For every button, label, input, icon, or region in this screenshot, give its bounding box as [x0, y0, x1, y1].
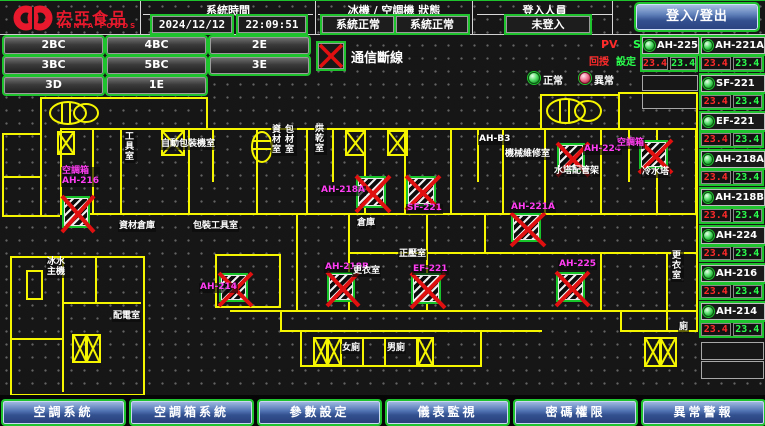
chiller-status-value: 系統正常 [322, 16, 394, 33]
wall [95, 256, 97, 302]
spiral-stair-icon [46, 99, 104, 131]
wall [120, 128, 122, 215]
stairs-icon [326, 337, 342, 366]
spiral-stair-icon [542, 96, 608, 130]
unit-values-ef-221: 23.4 23.4 [701, 133, 762, 146]
unit-name: AH-224 [716, 230, 757, 241]
unit-name: AH-218A [715, 154, 764, 165]
unit-row-ah-224[interactable]: AH-224 [701, 227, 765, 244]
pv-name-label: 回授 [589, 53, 609, 68]
scada-screen: 宏亞食品 HUNYA FOODS 系統時間 2024/12/12 22:09:5… [0, 0, 765, 426]
pv-value: 23.4 [701, 57, 731, 70]
unit-status-led-icon [703, 78, 714, 89]
ahu-status-value: 系統正常 [396, 16, 468, 33]
system-date-value: 2024/12/12 [152, 16, 232, 33]
room-label: 水塔配管架 [553, 167, 600, 177]
login-user-label: 登入人員 [477, 2, 612, 14]
floor-button-3d[interactable]: 3D [4, 77, 103, 94]
header-divider [140, 1, 141, 34]
plan-unit-label: AH-221A [510, 203, 556, 213]
pv-header-label: PV [601, 38, 618, 51]
plan-unit-label: 空調箱 [616, 139, 645, 149]
empty-slot [642, 75, 698, 91]
unit-row-ah-218a[interactable]: AH-218A [701, 151, 765, 168]
room-label: 自動包裝機室 [160, 140, 216, 150]
room-label: 資材室 [271, 126, 284, 156]
ahu-unit-icon-offline-ah-225[interactable] [556, 272, 585, 302]
abnormal-led-icon [579, 72, 591, 84]
sv-name-label: 設定 [616, 53, 636, 68]
sv-setpoint[interactable]: 23.4 [670, 57, 696, 70]
floor-button-2bc[interactable]: 2BC [4, 37, 103, 54]
floor-button-3bc[interactable]: 3BC [4, 57, 103, 74]
room-label: 正壓室 [398, 250, 427, 260]
pv-value: 23.4 [642, 57, 668, 70]
ahu-unit-icon-offline-ah-216[interactable] [62, 196, 90, 228]
wall [332, 128, 334, 182]
wall [2, 176, 40, 178]
stairs-icon [85, 334, 101, 363]
pv-value: 23.4 [701, 247, 731, 260]
abnormal-legend-label: 異常 [594, 72, 614, 87]
unit-row-ah-221a[interactable]: AH-221A [701, 37, 765, 54]
room-label: 廁 [678, 323, 689, 333]
unit-name: AH-225 [657, 40, 698, 51]
unit-row-ah-214[interactable]: AH-214 [701, 303, 765, 320]
floor-button-3e[interactable]: 3E [210, 57, 309, 74]
room-label: 烘乾室 [314, 125, 327, 155]
empty-slot [701, 361, 764, 379]
wall [300, 330, 302, 367]
normal-legend-label: 正常 [543, 72, 563, 87]
wall [2, 133, 42, 135]
unit-name: AH-218B [715, 192, 764, 203]
unit-name: AH-214 [716, 306, 757, 317]
unit-values-sf-221: 23.4 23.4 [701, 95, 762, 108]
unit-row-ah-216[interactable]: AH-216 [701, 265, 765, 282]
wall [280, 310, 282, 332]
wall [306, 128, 308, 215]
header-divider [315, 1, 316, 34]
wall [40, 97, 42, 217]
plan-unit-label: 空調箱AH-216 [61, 167, 100, 187]
sv-setpoint[interactable]: 23.4 [733, 171, 763, 184]
brand-name-en: HUNYA FOODS [58, 22, 137, 30]
pv-value: 23.4 [701, 285, 731, 298]
ahu-unit-icon-offline-ah-218b[interactable] [327, 272, 355, 302]
wall [206, 97, 208, 128]
plan-unit-label: AH-225 [558, 260, 597, 270]
wall [10, 338, 64, 340]
room-label: 機械維修室 [504, 150, 551, 160]
plan-unit-label: SF-221 [406, 204, 443, 214]
pv-value: 23.4 [701, 95, 731, 108]
floor-button-5bc[interactable]: 5BC [107, 57, 206, 74]
stairs-icon [345, 130, 366, 156]
plan-unit-label: EF-221 [412, 265, 449, 275]
unit-name: EF-221 [716, 116, 754, 127]
wall [618, 92, 698, 94]
ahu-unit-icon-offline-ef-221[interactable] [411, 273, 441, 304]
stairs-icon [659, 337, 677, 367]
unit-values-ah-225: 23.4 23.4 [642, 57, 696, 70]
room-label: 包材室 [284, 126, 297, 156]
room-label: 配電室 [112, 312, 141, 322]
nav-button-meter-monitor[interactable]: 儀表監視 [387, 401, 508, 424]
room-label: 包裝工具室 [192, 222, 239, 232]
wall [618, 92, 620, 128]
ahu-unit-icon-offline-sf-221[interactable] [406, 176, 436, 206]
wall [628, 128, 630, 182]
unit-name: SF-221 [716, 78, 755, 89]
wall [362, 337, 364, 365]
sv-setpoint[interactable]: 23.4 [733, 57, 763, 70]
wall [230, 310, 696, 312]
wall [620, 310, 622, 332]
brand-logo-icon [12, 3, 54, 37]
comm-loss-icon [316, 41, 346, 71]
unit-row-ah-225[interactable]: AH-225 [642, 37, 699, 54]
empty-slot [701, 342, 764, 360]
pv-value: 23.4 [701, 133, 731, 146]
unit-row-sf-221[interactable]: SF-221 [701, 75, 765, 92]
bottom-nav-bar: 空調系統 空調箱系統 參數設定 儀表監視 密碼權限 異常警報 [0, 395, 765, 426]
comm-loss-label: 通信斷線 [351, 47, 403, 66]
wall [62, 302, 141, 304]
header-underline [143, 14, 313, 15]
sv-setpoint[interactable]: 23.4 [733, 285, 763, 298]
unit-status-led-icon [703, 40, 713, 51]
equipment-icon [26, 270, 43, 300]
room-label: 更衣室 [352, 267, 381, 277]
unit-values-ah-218b: 23.4 23.4 [701, 209, 762, 222]
wall [450, 128, 452, 215]
sv-setpoint[interactable]: 23.4 [733, 133, 763, 146]
room-label: 資材倉庫 [118, 222, 156, 232]
room-label: 倉庫 [356, 219, 376, 229]
unit-row-ah-218b[interactable]: AH-218B [701, 189, 765, 206]
ahu-unit-icon-offline-ah-221a[interactable] [511, 213, 541, 242]
unit-status-led-icon [703, 230, 714, 241]
nav-button-hvac-system[interactable]: 空調系統 [3, 401, 124, 424]
machine-status-label: 冰機 / 空調機 狀態 [318, 2, 470, 14]
unit-values-ah-214: 23.4 23.4 [701, 323, 762, 336]
sv-setpoint[interactable]: 23.4 [733, 209, 763, 222]
unit-row-ef-221[interactable]: EF-221 [701, 113, 765, 130]
empty-slot [642, 93, 698, 109]
unit-values-ah-224: 23.4 23.4 [701, 247, 762, 260]
stairs-icon [387, 130, 408, 156]
floor-button-2e[interactable]: 2E [210, 37, 309, 54]
wall [2, 133, 4, 215]
unit-status-led-icon [703, 268, 714, 279]
nav-button-parameters[interactable]: 參數設定 [259, 401, 380, 424]
sv-setpoint[interactable]: 23.4 [733, 95, 763, 108]
wall [212, 128, 214, 182]
sv-setpoint[interactable]: 23.4 [733, 323, 763, 336]
floor-button-1e[interactable]: 1E [107, 77, 206, 94]
wall [480, 330, 482, 367]
room-label: AH-B3 [478, 135, 511, 145]
unit-label-line: AH-216 [62, 176, 99, 186]
wall [2, 215, 60, 217]
pv-value: 23.4 [701, 323, 731, 336]
unit-status-led-icon [703, 116, 714, 127]
room-label: 工具室 [124, 133, 137, 163]
floor-button-4bc[interactable]: 4BC [107, 37, 206, 54]
unit-values-ah-221a: 23.4 23.4 [701, 57, 762, 70]
wall [600, 252, 602, 312]
wall [484, 215, 486, 254]
unit-name: AH-221A [715, 40, 764, 51]
pv-value: 23.4 [701, 209, 731, 222]
pv-value: 23.4 [701, 171, 731, 184]
room-label: 冰水主機 [46, 258, 70, 278]
wall [666, 252, 668, 330]
header-underline [477, 14, 612, 15]
unit-status-led-icon [703, 306, 714, 317]
unit-name: AH-216 [716, 268, 757, 279]
unit-status-led-icon [703, 154, 713, 165]
nav-button-ahu-system[interactable]: 空調箱系統 [131, 401, 252, 424]
header-underline [318, 14, 470, 15]
stairs-icon [57, 131, 75, 155]
system-time-value: 22:09:51 [238, 16, 306, 33]
room-label: 女廁 [341, 344, 361, 354]
unit-values-ah-218a: 23.4 23.4 [701, 171, 762, 184]
header-divider [472, 1, 473, 34]
nav-button-alarm[interactable]: 異常警報 [643, 401, 764, 424]
room-label: 男廁 [386, 344, 406, 354]
unit-label-line: 空調箱 [62, 166, 89, 176]
unit-values-ah-216: 23.4 23.4 [701, 285, 762, 298]
header-divider [612, 1, 613, 34]
stairs-icon [417, 337, 434, 366]
plan-unit-label: AH-218A [320, 186, 366, 196]
normal-led-icon [528, 72, 540, 84]
wall [280, 330, 542, 332]
room-label: 冷水塔 [641, 168, 670, 178]
login-user-value: 未登入 [506, 16, 590, 33]
sv-setpoint[interactable]: 23.4 [733, 247, 763, 260]
unit-status-led-icon [644, 40, 655, 51]
unit-status-led-icon [703, 192, 713, 203]
login-logout-button[interactable]: 登入/登出 [636, 4, 758, 30]
system-time-label: 系統時間 [143, 2, 313, 14]
nav-button-password-auth[interactable]: 密碼權限 [515, 401, 636, 424]
wall [600, 128, 602, 215]
plan-unit-label: AH-214 [199, 283, 238, 293]
wall [296, 215, 298, 312]
room-label: 更衣室 [671, 252, 684, 282]
